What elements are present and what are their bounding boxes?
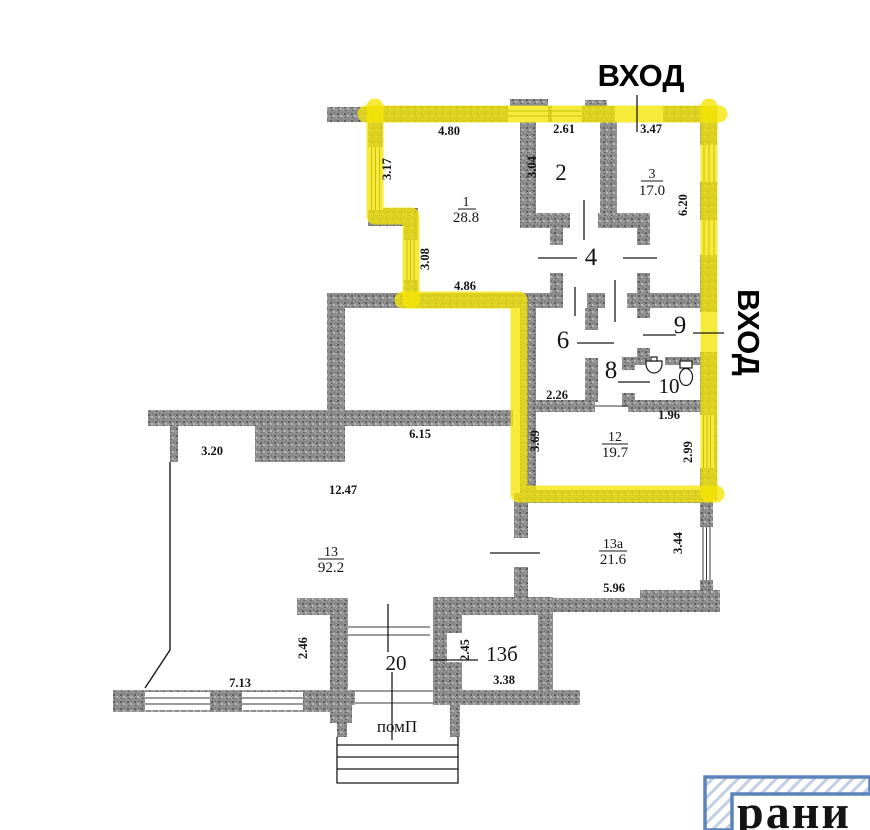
room-number: 12 [608,430,622,445]
room-label-13a: 13а 21.6 [599,537,627,568]
dimension-label: 3.20 [201,444,223,458]
dimension-label: 4.80 [438,124,460,138]
room-label-2: 2 [555,160,567,185]
room-label-4: 4 [585,244,598,271]
dimension-label: 2.61 [553,122,575,136]
dimension-label: 2.45 [458,639,472,661]
door-opening [605,293,627,308]
room-number: 13а [603,537,624,552]
room-number: 20 [386,651,407,675]
porch-label: помП [377,717,417,736]
wall [337,705,347,737]
dimension-label: 3.17 [380,158,394,180]
dimension-label: 2.99 [681,441,695,463]
wall [538,615,553,690]
door-opening [585,330,598,358]
dimension-label: 6.15 [409,427,431,441]
wall [462,597,553,615]
room-number: 6 [557,327,570,354]
room-number: 8 [605,357,618,384]
dimension-label: 2.46 [296,637,310,659]
room-label-6: 6 [557,327,570,354]
room-number: 13 [324,545,338,560]
dimension-label: 3.38 [493,673,515,687]
room-label-20: 20 [386,651,407,675]
room-area: 28.8 [453,210,479,226]
room-number: 13б [486,642,518,666]
dimension-label: 3.69 [528,430,542,452]
floor-plan-svg: ВХОД ВХОД 1 28.8 2 3 17.0 4 6 8 9 10 [0,0,870,830]
dimension-label: 12.47 [329,483,357,497]
room-label-8: 8 [605,357,618,384]
toilet-tank-icon [680,361,692,368]
room-area: 17.0 [639,183,665,199]
sink-tap-icon [651,357,657,361]
room-area: 21.6 [600,552,627,568]
dimension-label: 5.96 [603,581,625,595]
room-number: 10 [659,374,680,398]
wall [330,598,348,690]
dimension-label: 2.26 [546,388,568,402]
dimension-label: 3.47 [640,122,662,136]
wall [640,590,720,612]
entrance-label-top: ВХОД [598,58,685,93]
dimension-label: 1.96 [658,408,680,422]
wall [600,121,617,213]
wall [327,293,345,426]
room-label-9: 9 [674,312,687,339]
room-area: 19.7 [602,445,629,461]
room-number: 2 [555,160,567,185]
dimension-label: 4.86 [454,279,476,293]
dimension-label: 7.13 [229,676,251,690]
room-area: 92.2 [318,560,344,576]
dimension-label: 6.20 [676,194,690,216]
room-label-13b: 13б [486,642,518,666]
room-number: 9 [674,312,687,339]
room-label-10: 10 [659,374,680,398]
dimension-label: 3.08 [418,248,432,270]
entrance-label-right: ВХОД [731,289,766,376]
wall [450,705,460,737]
window [145,692,210,710]
door-opening [550,245,563,273]
window [242,692,303,710]
toilet-bowl-icon [680,369,693,386]
door-opening [637,245,650,273]
wall [433,690,580,705]
sink-icon [646,361,662,373]
door-opening [637,318,650,348]
dimension-label: 3.04 [525,155,539,178]
wall [170,426,178,462]
grani-logo: рани [705,777,870,830]
room-number: 3 [649,167,656,182]
dimension-label: 3.44 [671,531,685,554]
room-number: 4 [585,244,598,271]
floor-plan-image: ВХОД ВХОД 1 28.8 2 3 17.0 4 6 8 9 10 [0,0,870,830]
logo-text: рани [737,786,851,830]
room-number: 1 [463,195,470,210]
